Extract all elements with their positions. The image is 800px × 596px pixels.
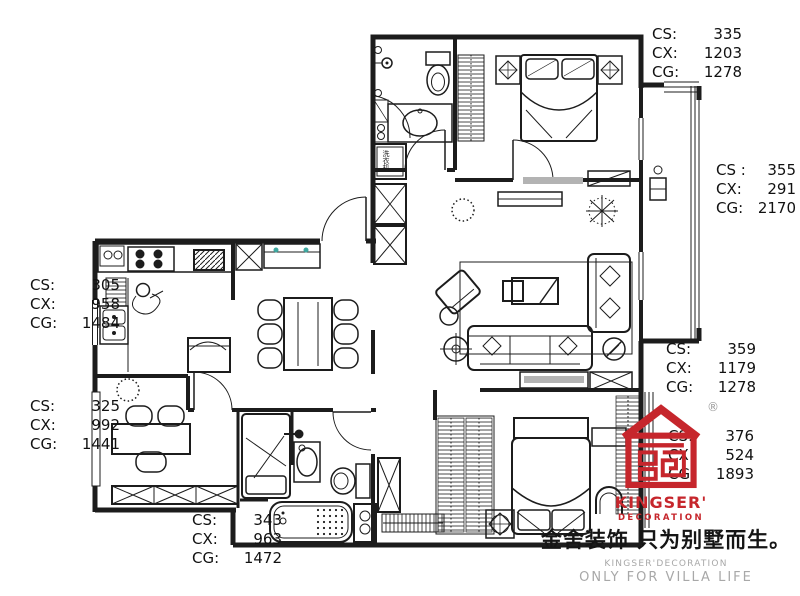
dim-row: CS:359 (666, 340, 756, 359)
dim-row: CG:1278 (652, 63, 742, 82)
toilet-icon (331, 464, 370, 498)
sink-icon (374, 100, 452, 142)
dim-value: 1179 (718, 359, 756, 378)
plant-dot (274, 248, 279, 253)
single-bed-icon (242, 414, 290, 498)
dim-label: CX: (30, 295, 56, 314)
tv-cabinet-icon (520, 372, 632, 390)
dim-label: CS: (30, 397, 55, 416)
dim-row: CX:963 (192, 530, 282, 549)
living-room (435, 254, 632, 390)
dim-row: CX:958 (30, 295, 120, 314)
slogan-english-large: ONLY FOR VILLA LIFE (536, 570, 796, 585)
bathtub-icon (270, 502, 352, 542)
shower-icon (374, 47, 392, 97)
dim-value: 958 (91, 295, 120, 314)
bathroom-top: 洗衣机 (374, 47, 452, 265)
toilet-icon (426, 52, 450, 95)
dim-row: CX:1203 (652, 44, 742, 63)
desk-icon (112, 424, 190, 454)
dim-value: 1203 (704, 44, 742, 63)
dim-row: CS :355 (716, 161, 796, 180)
dimension-left-upper: CS:305 CX:958 CG:1484 (30, 276, 120, 332)
dim-value: 2170 (758, 199, 796, 218)
dim-value: 1278 (704, 63, 742, 82)
plant-dot (304, 248, 309, 253)
walls (95, 37, 699, 545)
logo-wordmark: KINGSER' (612, 493, 710, 512)
plant-icon (117, 379, 139, 401)
loveseat-icon (588, 254, 630, 332)
dim-value: 1484 (82, 314, 120, 333)
dim-row: CS:343 (192, 511, 282, 530)
dim-label: CS: (30, 276, 55, 295)
dim-label: CX: (716, 180, 742, 199)
person-figure (132, 284, 163, 315)
dim-label: CG: (30, 314, 57, 333)
double-bed-icon (521, 55, 597, 141)
dim-row: CX:1179 (666, 359, 756, 378)
dim-value: 305 (91, 276, 120, 295)
dimension-left-lower: CS:325 CX:992 CG:1441 (30, 397, 120, 453)
dim-value: 343 (253, 511, 282, 530)
fridge-icon (188, 338, 230, 372)
entry-cabinets (236, 244, 320, 270)
dim-row: CX:992 (30, 416, 120, 435)
dim-value: 1472 (244, 549, 282, 568)
dimension-right-middle: CS :355 CX:291 CG:2170 (716, 161, 796, 217)
bed-icon (512, 438, 590, 534)
sink-icon (294, 442, 320, 482)
dim-value: 325 (91, 397, 120, 416)
brand-slogan: 金舍装饰 只为别墅而生。 KINGSER'DECORATION ONLY FOR… (536, 524, 796, 585)
dim-value: 963 (253, 530, 282, 549)
plant-icon (452, 199, 474, 221)
dim-value: 335 (713, 25, 742, 44)
chair (258, 348, 282, 368)
dim-label: CG: (666, 378, 693, 397)
storage-cabinet (112, 486, 238, 504)
kingser-logo: ® KINGSER' DECORATION (612, 404, 710, 523)
dimension-top-right: CS:335 CX:1203 CG:1278 (652, 25, 742, 81)
dim-value: 291 (767, 180, 796, 199)
balcony (650, 166, 666, 200)
rug (460, 262, 632, 354)
dim-row: CG:1441 (30, 435, 120, 454)
dim-value: 1441 (82, 435, 120, 454)
headboard (514, 418, 588, 438)
dim-label: CS: (652, 25, 677, 44)
dim-label: CX: (666, 359, 692, 378)
registered-mark: ® (707, 400, 719, 414)
sofa-icon (468, 326, 592, 370)
dim-label: CG: (652, 63, 679, 82)
master-bedroom (452, 55, 630, 227)
chair (334, 324, 358, 344)
dim-row: CG:2170 (716, 199, 796, 218)
chair (334, 300, 358, 320)
logo-subtitle: DECORATION (612, 513, 710, 523)
dim-row: CS:325 (30, 397, 120, 416)
hook (295, 430, 304, 439)
coffee-table-icon (503, 278, 558, 304)
shower-mat-dots (317, 509, 343, 535)
chair (334, 348, 358, 368)
dim-label: CG: (30, 435, 57, 454)
dim-label: CS: (666, 340, 691, 359)
nightstand-right (598, 56, 622, 84)
plant-scribble-icon (586, 195, 618, 227)
ac-drain-icon (603, 338, 625, 360)
study-room (112, 379, 238, 504)
dim-value: 1893 (716, 465, 754, 484)
chair (258, 300, 282, 320)
small-bedroom (242, 414, 290, 498)
dim-label: CX: (192, 530, 218, 549)
dim-value: 1278 (718, 378, 756, 397)
armchair-icon (435, 269, 482, 315)
floor-plan-page: 洗衣机 (0, 0, 800, 596)
dimension-right-lower: CS:359 CX:1179 CG:1278 (666, 340, 756, 396)
microwave-icon (194, 250, 224, 270)
washing-machine-label: 洗衣机 (382, 149, 390, 172)
dim-label: CG: (716, 199, 743, 218)
dim-label: CG: (192, 549, 219, 568)
stove-icon (128, 247, 174, 271)
dim-value: 992 (91, 416, 120, 435)
windows (92, 82, 699, 528)
dim-row: CS:305 (30, 276, 120, 295)
dim-label: CX: (652, 44, 678, 63)
dim-value: 359 (727, 340, 756, 359)
dim-row: CG:1278 (666, 378, 756, 397)
dim-value: 524 (725, 446, 754, 465)
second-bedroom (486, 418, 626, 538)
dim-label: CS: (192, 511, 217, 530)
dim-value: 376 (725, 427, 754, 446)
shelf (523, 177, 583, 184)
dim-label: CS : (716, 161, 746, 180)
dining-area (258, 298, 358, 370)
slogan-chinese: 金舍装饰 只为别墅而生。 (536, 524, 796, 554)
kingser-seal-icon (617, 404, 705, 492)
dim-row: CS:335 (652, 25, 742, 44)
washing-machine-icon: 洗衣机 (374, 144, 406, 179)
dining-table-icon (284, 298, 332, 370)
dim-row: CX:291 (716, 180, 796, 199)
storage-column (374, 184, 406, 264)
slogan-english-small: KINGSER'DECORATION (536, 559, 796, 569)
walk-in-closet (378, 396, 640, 534)
nightstand-left (496, 56, 520, 84)
dim-value: 355 (767, 161, 796, 180)
chair (258, 324, 282, 344)
dim-row: CG:1484 (30, 314, 120, 333)
dimension-bottom: CS:343 CX:963 CG:1472 (192, 511, 282, 567)
dim-row: CG:1472 (192, 549, 282, 568)
dim-label: CX: (30, 416, 56, 435)
